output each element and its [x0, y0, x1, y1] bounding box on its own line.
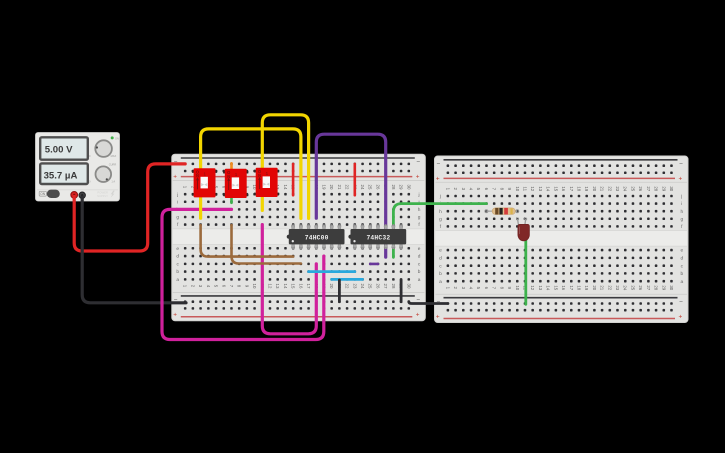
svg-text:ON: ON	[40, 192, 45, 196]
svg-text:35.7 µA: 35.7 µA	[44, 170, 78, 181]
svg-text:h: h	[680, 209, 683, 215]
svg-text:17: 17	[306, 284, 311, 289]
svg-text:23: 23	[352, 284, 357, 289]
svg-text:28: 28	[391, 284, 396, 289]
svg-text:24: 24	[360, 284, 365, 289]
svg-text:i: i	[681, 201, 682, 207]
svg-text:19: 19	[584, 186, 589, 191]
svg-text:25: 25	[630, 186, 635, 191]
svg-text:12: 12	[530, 285, 535, 290]
svg-text:21: 21	[600, 186, 605, 191]
svg-text:d: d	[418, 254, 421, 260]
svg-text:13: 13	[275, 284, 280, 289]
svg-text:19: 19	[584, 285, 589, 290]
svg-text:−: −	[437, 161, 441, 168]
svg-text:30: 30	[406, 185, 411, 190]
svg-text:24: 24	[360, 185, 365, 190]
svg-text:+: +	[436, 313, 440, 320]
svg-text:74HC32: 74HC32	[366, 234, 390, 241]
svg-text:5.00 V: 5.00 V	[45, 145, 73, 156]
svg-text:ON: ON	[115, 137, 119, 141]
svg-text:14: 14	[283, 185, 288, 190]
svg-text:27: 27	[646, 186, 651, 191]
svg-text:d: d	[439, 256, 442, 262]
svg-text:e: e	[418, 247, 421, 252]
svg-text:h: h	[418, 207, 421, 213]
svg-text:16: 16	[561, 285, 566, 290]
svg-text:14: 14	[283, 284, 288, 289]
svg-text:d: d	[176, 254, 179, 260]
svg-text:26: 26	[638, 285, 643, 290]
svg-text:10: 10	[252, 284, 257, 289]
svg-text:24: 24	[623, 285, 628, 290]
svg-text:b: b	[418, 269, 421, 275]
svg-text:h: h	[439, 209, 442, 215]
svg-text:i: i	[177, 199, 178, 205]
svg-text:22: 22	[345, 185, 350, 190]
svg-text:1: 1	[266, 171, 269, 176]
svg-text:j: j	[439, 194, 441, 200]
svg-text:18: 18	[577, 186, 582, 191]
svg-text:g: g	[176, 216, 179, 221]
svg-text:a: a	[176, 278, 179, 283]
svg-text:a: a	[439, 280, 442, 285]
svg-text:+: +	[416, 174, 420, 181]
svg-text:20: 20	[592, 186, 597, 191]
svg-text:15: 15	[553, 285, 558, 290]
svg-text:30: 30	[669, 186, 674, 191]
svg-text:10: 10	[515, 285, 520, 290]
svg-text:22: 22	[345, 284, 350, 289]
svg-text:1 A: 1 A	[111, 180, 115, 184]
svg-text:g: g	[680, 217, 683, 222]
svg-text:e: e	[176, 247, 179, 252]
svg-text:a: a	[418, 278, 421, 283]
svg-text:74HC00: 74HC00	[305, 234, 329, 241]
svg-text:j: j	[680, 194, 682, 200]
svg-text:28: 28	[654, 186, 659, 191]
svg-text:e: e	[680, 249, 683, 254]
svg-text:1: 1	[235, 172, 238, 177]
svg-text:30: 30	[669, 285, 674, 290]
svg-text:12: 12	[530, 186, 535, 191]
svg-text:a: a	[680, 280, 683, 285]
svg-text:20: 20	[329, 185, 334, 190]
svg-text:11: 11	[523, 187, 528, 192]
svg-text:22: 22	[607, 186, 612, 191]
svg-text:+: +	[173, 174, 177, 181]
svg-text:17: 17	[569, 186, 574, 191]
svg-text:20: 20	[329, 284, 334, 289]
svg-text:+: +	[679, 313, 683, 320]
svg-text:j: j	[418, 192, 420, 198]
svg-text:21: 21	[337, 185, 342, 190]
svg-text:g: g	[418, 216, 421, 221]
svg-text:30: 30	[406, 284, 411, 289]
svg-text:29: 29	[399, 185, 404, 190]
svg-text:25: 25	[630, 285, 635, 290]
svg-text:MAX: MAX	[111, 154, 117, 158]
svg-text:−: −	[416, 159, 420, 166]
svg-text:−: −	[679, 161, 683, 168]
svg-text:+: +	[679, 175, 683, 182]
svg-text:16: 16	[298, 284, 303, 289]
svg-text:d: d	[680, 256, 683, 262]
svg-text:25: 25	[368, 185, 373, 190]
svg-text:15: 15	[291, 284, 296, 289]
svg-text:20: 20	[592, 285, 597, 290]
svg-text:19: 19	[322, 185, 327, 190]
svg-text:24: 24	[623, 186, 628, 191]
svg-text:29: 29	[661, 186, 666, 191]
svg-text:13: 13	[538, 186, 543, 191]
svg-text:21: 21	[600, 285, 605, 290]
svg-text:g: g	[439, 217, 442, 222]
svg-text:10: 10	[515, 186, 520, 191]
svg-text:b: b	[176, 269, 179, 275]
svg-text:1: 1	[204, 172, 207, 177]
svg-text:b: b	[680, 271, 683, 277]
svg-text:17: 17	[569, 285, 574, 290]
svg-text:SUPPLY: SUPPLY	[97, 194, 108, 198]
svg-text:16: 16	[561, 186, 566, 191]
svg-text:23: 23	[615, 186, 620, 191]
svg-text:28: 28	[654, 285, 659, 290]
svg-text:28: 28	[391, 185, 396, 190]
svg-text:29: 29	[661, 285, 666, 290]
svg-text:+: +	[416, 312, 420, 319]
svg-text:22: 22	[607, 285, 612, 290]
svg-text:+: +	[436, 175, 440, 182]
svg-text:26: 26	[376, 284, 381, 289]
svg-text:18: 18	[577, 285, 582, 290]
svg-text:26: 26	[638, 186, 643, 191]
svg-text:14: 14	[546, 285, 551, 290]
svg-text:12: 12	[268, 284, 273, 289]
svg-text:13: 13	[538, 285, 543, 290]
svg-text:j: j	[176, 192, 178, 198]
svg-text:26: 26	[376, 185, 381, 190]
svg-text:−: −	[679, 299, 683, 306]
svg-text:27: 27	[646, 285, 651, 290]
svg-text:14: 14	[546, 186, 551, 191]
svg-text:27: 27	[383, 284, 388, 289]
svg-text:+: +	[173, 312, 177, 319]
svg-text:CURR: CURR	[109, 162, 117, 166]
svg-text:e: e	[439, 249, 442, 254]
svg-text:25: 25	[368, 284, 373, 289]
svg-text:b: b	[439, 271, 442, 277]
svg-text:23: 23	[615, 285, 620, 290]
svg-text:15: 15	[553, 186, 558, 191]
